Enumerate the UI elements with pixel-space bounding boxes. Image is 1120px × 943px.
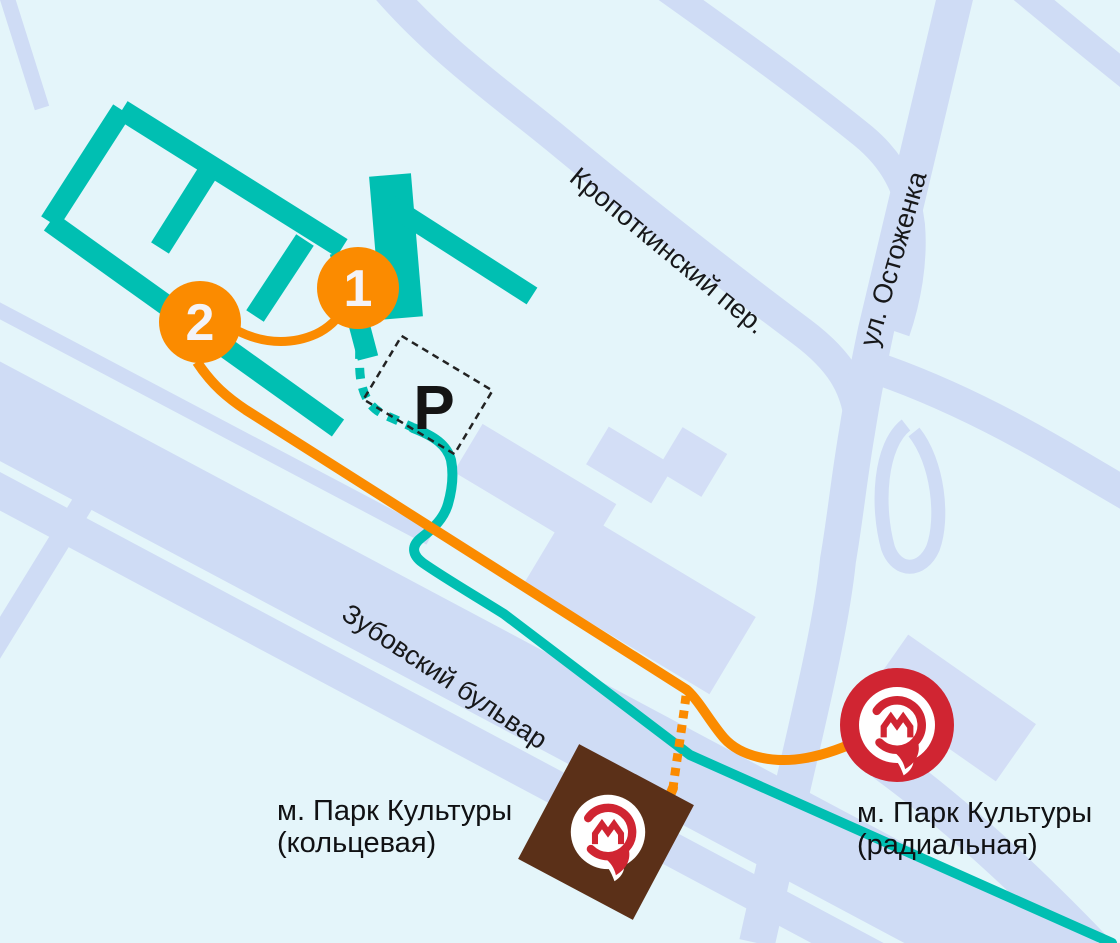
entrance-marker-1[interactable]: 1 <box>317 247 399 329</box>
station-koltsevaya-line: (кольцевая) <box>277 827 436 859</box>
station-radialnaya-name: м. Парк Культуры <box>857 797 1092 829</box>
access-map: P Кропоткинский пер. ул. Остоженка Зубов… <box>0 0 1120 943</box>
map-canvas: P Кропоткинский пер. ул. Остоженка Зубов… <box>0 0 1120 943</box>
entrance-marker-2-number: 2 <box>186 294 215 352</box>
entrance-marker-1-number: 1 <box>344 260 373 318</box>
parking-label: P <box>413 374 454 443</box>
station-radialnaya-line: (радиальная) <box>857 829 1038 861</box>
entrance-marker-2[interactable]: 2 <box>159 281 241 363</box>
station-koltsevaya-name: м. Парк Культуры <box>277 795 512 827</box>
station-radialnaya-marker[interactable] <box>840 668 954 782</box>
